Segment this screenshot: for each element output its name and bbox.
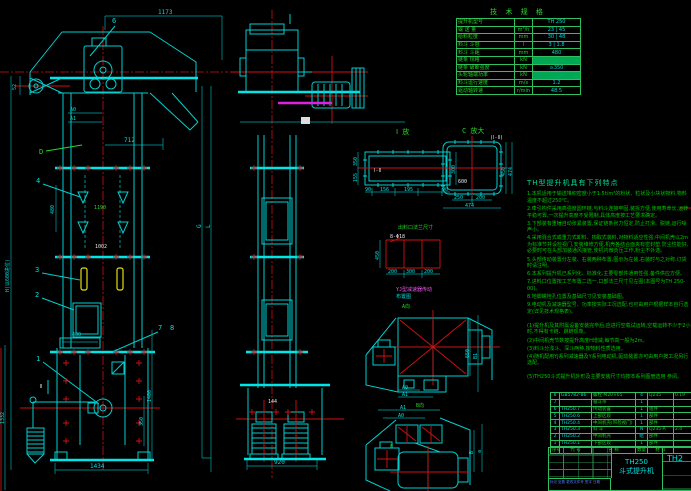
bom-no: 4 [551,420,560,427]
bom-row: 3 TH250.3 料 斗 N Q235-A 2.4 [551,426,691,433]
bom-code: TH250.1 [560,440,592,447]
spec-unit: kN [515,64,533,72]
bolt-grid-detail: 出料口法兰尺寸 8-Φ18 450 200 300 200 [375,224,440,278]
notes-block: TH型提升机具有下列特点 1.本机适用于输送堆积密度小于1.5t/m³的粉状、粒… [527,179,691,382]
spec-table-title: 技 术 规 格 [456,7,580,17]
spec-label: 料斗 斗距 [457,49,515,57]
bom-code: TH250.2 [560,433,592,440]
spec-row: 料斗运行速度 m/s 1.2 [457,79,581,87]
yj-dim-b1: B1 [473,353,479,359]
bom-name: 中间机壳 [592,433,636,440]
alt-a1: A1 [400,405,406,411]
note-subline: (4)随机配用YJ系列减速器及Y系列电动机,驱动装置亦可由用户按工况另行选配。 [527,354,691,367]
yj-a1: A1 [402,392,408,398]
bom-code: TH250.6 [560,413,592,420]
bolt-grid-c3: 200 [424,269,433,275]
signature-row: 标记 处数 更改文件号 签字 日期 [549,478,611,490]
bom-qty: 1 [636,413,648,420]
spec-label: 驱动轴转速 [457,87,515,95]
bom-no: 2 [551,433,560,440]
spec-unit: m³/h [515,26,533,34]
bom-row: 5 TH250.6 上部区段 1 部件 [551,413,691,420]
drawing-title-name: 斗式提升机 [611,467,662,476]
spec-value: 48.5 [533,87,581,95]
bom-weight: 2.4 [674,426,691,433]
view-d-label: D [39,148,43,156]
left-elevation-view: 1173 712 A0 A1 52 6 D 1190 1002 480 4 3 [0,9,228,491]
callout-7: 7 [158,324,162,332]
yj-title-2: 布置图 [396,293,411,300]
bom-name: 下部区段 [592,440,636,447]
callout-4: 4 [36,177,40,185]
bucket-right [117,268,123,290]
spec-row: 给料粒度 mm 30 | 48 [457,34,581,42]
dim-1190: 1190 [94,205,106,211]
note-line: 2.牵引构件采用高强度圆环链,与料斗连接牢固,装拆方便,使用寿命长,运转平稳可靠… [527,206,691,219]
spec-label: 料斗运行速度 [457,79,515,87]
drawing-title-model: TH250 [611,458,662,467]
revision-grid [549,448,612,478]
bom-no: 6 [551,406,560,413]
spec-value: TH 250 [533,19,581,27]
flange-c-note: (Ⅰ-Ⅱ) [490,135,503,141]
bom-weight [674,420,691,427]
bom-qty: 1 [636,406,648,413]
note-line: 3.下部装有重锤自动张紧装置,保证链条张力恒定,防止打滑、脱链,运行噪声小。 [527,221,691,234]
flange-c-inner: 600 [458,179,467,185]
dim-placeholder [301,117,310,124]
note-last: (5)TH250斗式提升机外形及主要安装尺寸均按本系列图册选用 参阅。 [527,374,691,381]
alt-dim-a: a [477,450,483,453]
bom-code: TH250.7 [560,406,592,413]
spec-value: 30 | 48 [533,34,581,42]
bom-material: 部件 [648,420,674,427]
spec-unit: m/s [515,79,533,87]
dim-920: 920 [274,459,285,466]
callout-2: 2 [35,291,39,299]
bom-name: 螺栓 M20×65 [592,393,636,400]
bom-weight [674,433,691,440]
flange-c-right1: 450 [501,167,507,176]
dim-350: 350 [139,417,145,426]
bom-material: 部件 [648,413,674,420]
flange-i-mark: Ⅰ-Ⅱ [374,168,381,174]
spec-value: 3 | 1.8 [533,41,581,49]
note-subline: (3)料斗分浅斗、深斗两种,按物料性质选用。 [527,346,691,353]
title-block: 标记 处数 更改文件号 签字 日期 TH250 斗式提升机 TH2 [548,447,691,491]
bom-name: 传动装置 [592,406,636,413]
flange-i-b1: 90 [365,187,371,193]
flange-c-btotal: 474 [465,203,474,209]
bom-row: 6 TH250.7 传动装置 1 组件 [551,406,691,413]
bom-weight [674,406,691,413]
bom-material: 组件 [648,406,674,413]
bom-qty: 1 [636,399,648,406]
dim-l: L [205,224,212,228]
drawing-number: TH2 [663,448,691,490]
dim-1332: 1332 [0,412,6,424]
bom-name: 畚斗带 [592,399,636,406]
dim-h: H(以600进位) [4,259,11,292]
yj-title-1: YJ型减速器传动 [396,286,432,293]
note-subline: (2)中间机壳节数按提升高度H增减,每节高一般为2m。 [527,338,691,345]
side-flange-bolts [251,165,303,355]
section-ii: Ⅱ [40,384,42,390]
alt-dim-b: B [469,451,475,454]
spec-unit: r/min [515,87,533,95]
spec-label: 链条 规格 [457,56,515,64]
bom-qty: 组 [636,433,648,440]
bolt-grid-left: 450 [375,251,381,260]
callout-8: 8 [170,324,174,332]
side-elevation-view: 144 920 [230,10,405,478]
callout-6: 6 [112,17,116,25]
flange-c-b1: 250 [454,195,463,201]
bom-material [648,399,674,406]
bom-row: 4 TH250.4 中间机壳(带检视门) 1 部件 [551,420,691,427]
dim-480-boot: 480 [72,332,81,338]
bom-row: 7 畚斗带 1 [551,399,691,406]
note-line: 6.本系列提升机已系列化、标准化,主要零部件通用性强,备件供应方便。 [527,271,691,278]
spec-value [533,56,581,64]
yj-dim-650: 650 [465,349,471,358]
alt-f: F [390,444,393,450]
alt-arrangement-view: B向 A1 A0 F B a [366,402,483,491]
flange-i-right: 300 [451,165,457,174]
bom-no: 8 [551,393,560,400]
spec-row: 链条 破断强度 kN ≥350 [457,64,581,72]
note-line: 9.电动机及减速器型号、功率按实际工况选配,也可由用户根据样本自行选定(详见技术… [527,302,691,315]
bom-row: 8 GB5782-86 螺栓 M20×65 4 Q235 0.19 [551,393,691,400]
flange-i-b3: 195 [404,187,413,193]
dim-1400: 1400 [147,390,153,402]
spec-unit: l [515,41,533,49]
bom-name: 上部区段 [592,413,636,420]
yj-a0: A0 [402,385,408,391]
spec-row: 提升机型号 TH 250 [457,19,581,27]
flange-c-title: C 放大 [462,126,484,135]
spec-label: 料斗 斗容 [457,41,515,49]
spec-label: 输 送 量 [457,26,515,34]
bolt-grid-c2: 300 [406,269,415,275]
spec-table: 提升机型号 TH 250 输 送 量 m³/h 23 | 45 给料粒度 mm … [456,18,581,95]
note-line: 5.头部传动装置分左装、右装两种布置,图示为左装,右装时与之对称,订货时请注明。 [527,257,691,270]
bucket-left [81,268,87,290]
yj-arrangement-view: YJ型减速器传动 布置图 A向 650 B1 A0 A1 [366,286,500,398]
spec-label: 提升机型号 [457,19,515,27]
flange-i-left-bot: 155 [353,173,359,182]
flange-i-b2: 156 [380,187,389,193]
bom-weight [674,399,691,406]
dim-1173: 1173 [158,9,173,16]
spec-label: 给料粒度 [457,34,515,42]
bom-weight [674,440,691,447]
callout-3: 3 [35,266,39,274]
spec-unit: mm [515,49,533,57]
bom-no: 7 [551,399,560,406]
bom-no: 5 [551,413,560,420]
spec-unit [515,19,533,27]
note-line: 7.进料口位置按工艺布置二选一,口部法兰尺寸见左图(本图号为TH 250-00)… [527,279,691,292]
bom-material: 部件 [648,440,674,447]
spec-row: 输 送 量 m³/h 23 | 45 [457,26,581,34]
bom-weight [674,413,691,420]
bom-no: 3 [551,426,560,433]
spec-unit: kN [515,56,533,64]
spec-row: 链条 规格 kN [457,56,581,64]
spec-unit: mm [515,34,533,42]
bom-code: TH250.3 [560,426,592,433]
spec-row: 料斗 斗容 l 3 | 1.8 [457,41,581,49]
bom-qty: 1 [636,440,648,447]
alt-tag: B向 [416,402,424,409]
bom-qty: N [636,426,648,433]
dim-144: 144 [268,399,277,405]
bom-code: TH250.4 [560,420,592,427]
spec-row: 头轮轴端功率 kN [457,72,581,80]
drawing-title: TH250 斗式提升机 [611,448,663,490]
bom-row: 2 TH250.2 中间机壳 组 部件 [551,433,691,440]
spec-row: 驱动轴转速 r/min 48.5 [457,87,581,95]
notes-heading: TH型提升机具有下列特点 [527,179,691,188]
bom-name: 中间机壳(带检视门) [592,420,636,427]
flange-i-left-top: 350 [353,157,359,166]
bom-qty: 4 [636,393,648,400]
dim-1434: 1434 [90,463,105,470]
note-line: 8.地脚螺栓孔位置及基础尺寸见安装基础图。 [527,294,691,301]
bom-material: Q235-A [648,426,674,433]
spec-label: 链条 破断强度 [457,64,515,72]
flange-i-title: Ⅰ 放 [396,127,409,136]
dim-1002: 1002 [95,244,107,250]
spec-value: 23 | 45 [533,26,581,34]
cad-canvas: 1173 712 A0 A1 52 6 D 1190 1002 480 4 3 [0,0,691,491]
spec-unit: kN [515,72,533,80]
spec-value [533,72,581,80]
flange-c-b2: 200 [476,195,485,201]
bom-no: 1 [551,440,560,447]
bolt-grid-caption: 出料口法兰尺寸 [398,224,433,231]
bom-row: 1 TH250.1 下部区段 1 部件 [551,440,691,447]
bom-qty: 1 [636,420,648,427]
bom-code [560,399,592,406]
dim-480-mid: 480 [50,205,56,214]
bom-table: 8 GB5782-86 螺栓 M20×65 4 Q235 0.19 7 畚斗带 … [550,392,691,454]
note-line: 4.采用混合式或重力式卸料、掏取式装料,对物料适应性强,中间机壳以2m为标准节并… [527,235,691,255]
note-subline: (1)提升机及其附属设备安装完毕后,应进行空载试运转,空载运转不少于2小时,不得… [527,323,691,336]
spec-value: ≥350 [533,64,581,72]
bom-name: 料 斗 [592,426,636,433]
alt-a0: A0 [398,413,404,419]
bom-code: GB5782-86 [560,393,592,400]
dim-52: 52 [12,84,18,90]
bolt-grid-c1: 200 [388,269,397,275]
spec-value: 480 [533,49,581,57]
bom-weight: 0.19 [674,393,691,400]
flange-c-right2: 474 [508,167,514,176]
dim-g: G [196,224,203,228]
note-line: 1.本机适用于输送堆积密度小于1.5t/m³的粉状、粒状及小块状物料,物料温度不… [527,191,691,204]
callout-1: 1 [36,355,40,363]
yj-tag: A向 [402,303,410,310]
spec-row: 料斗 斗距 mm 480 [457,49,581,57]
bom-material: 部件 [648,433,674,440]
bom-material: Q235 [648,393,674,400]
spec-label: 头轮轴端功率 [457,72,515,80]
spec-value: 1.2 [533,79,581,87]
